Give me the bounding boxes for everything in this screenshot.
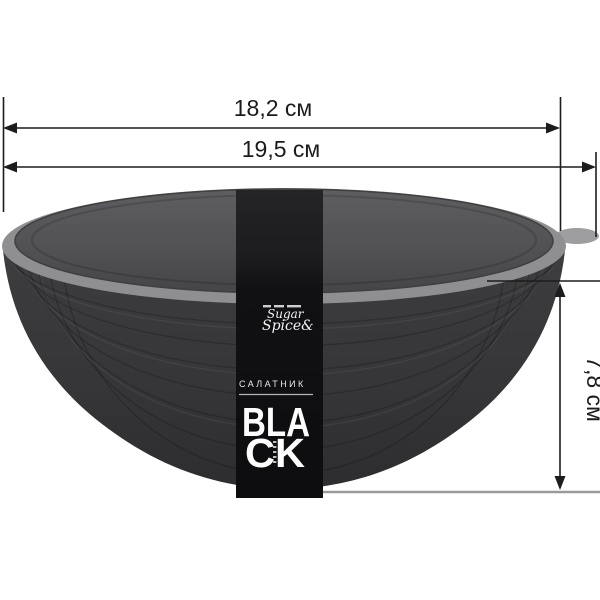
arrow-top-left — [3, 123, 17, 134]
diagram-svg: Sugar Spice& САЛАТНИК BLA CK — [0, 0, 600, 600]
outer-diameter-label: 19,5 см — [242, 136, 320, 162]
arrow-outer-right — [582, 162, 596, 173]
product-dimension-diagram: Sugar Spice& САЛАТНИК BLA CK — [0, 0, 600, 600]
arrow-height-bottom — [555, 476, 566, 490]
brand-logo-line2: Spice& — [262, 318, 314, 334]
top-diameter-label: 18,2 см — [234, 95, 312, 121]
product-category: САЛАТНИК — [239, 379, 306, 389]
arrow-outer-left — [3, 162, 17, 173]
label-band: Sugar Spice& САЛАТНИК BLA CK — [236, 190, 323, 498]
height-label: 7,8 см — [582, 356, 600, 422]
arrow-top-right — [546, 123, 560, 134]
